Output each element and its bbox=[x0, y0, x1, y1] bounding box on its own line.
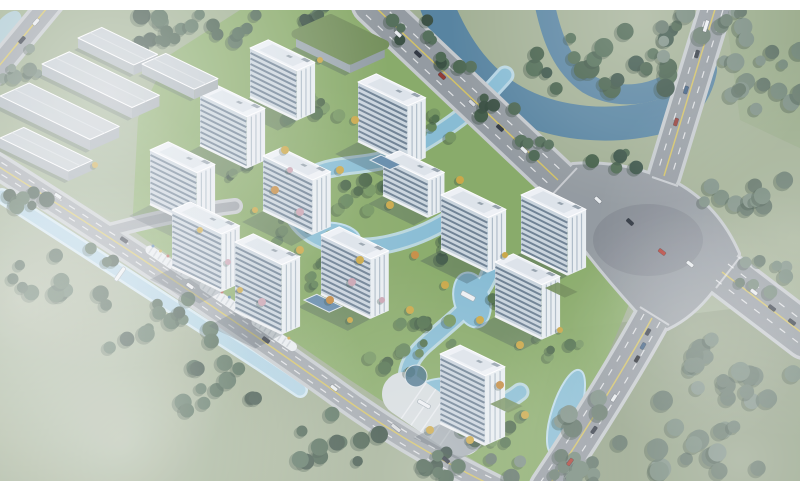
frame-bottom bbox=[0, 481, 800, 485]
frame-top bbox=[0, 0, 800, 10]
cool-tone-veil bbox=[0, 0, 800, 485]
atmosphere-haze-layer bbox=[0, 0, 800, 485]
aerial-masterplan-rendering bbox=[0, 0, 800, 485]
masterplan-scene bbox=[0, 0, 800, 485]
